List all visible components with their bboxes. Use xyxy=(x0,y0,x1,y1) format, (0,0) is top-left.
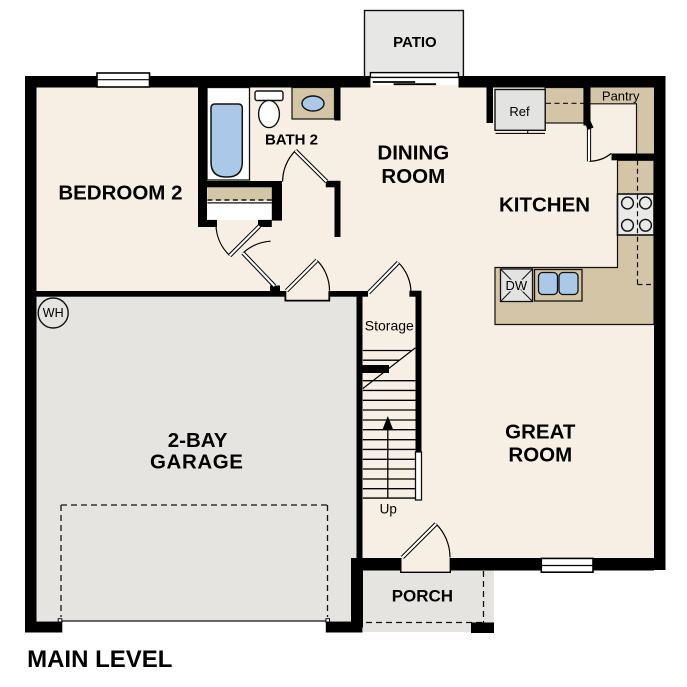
svg-text:ROOM: ROOM xyxy=(381,165,445,188)
svg-text:ROOM: ROOM xyxy=(508,444,572,467)
svg-text:BEDROOM 2: BEDROOM 2 xyxy=(58,182,182,205)
svg-text:Pantry: Pantry xyxy=(602,88,640,103)
svg-text:PORCH: PORCH xyxy=(392,587,453,606)
svg-text:WH: WH xyxy=(43,306,64,320)
svg-text:GARAGE: GARAGE xyxy=(150,451,244,474)
svg-text:2-BAY: 2-BAY xyxy=(168,429,228,452)
svg-text:PATIO: PATIO xyxy=(393,34,437,51)
svg-text:Ref: Ref xyxy=(509,104,530,119)
svg-text:DW: DW xyxy=(505,278,527,293)
svg-text:BATH 2: BATH 2 xyxy=(265,132,318,149)
svg-text:DINING: DINING xyxy=(377,142,449,165)
svg-text:MAIN LEVEL: MAIN LEVEL xyxy=(27,646,172,673)
svg-text:Up: Up xyxy=(380,502,397,517)
svg-text:KITCHEN: KITCHEN xyxy=(499,194,590,217)
svg-text:Storage: Storage xyxy=(365,317,414,333)
svg-text:GREAT: GREAT xyxy=(505,420,576,443)
